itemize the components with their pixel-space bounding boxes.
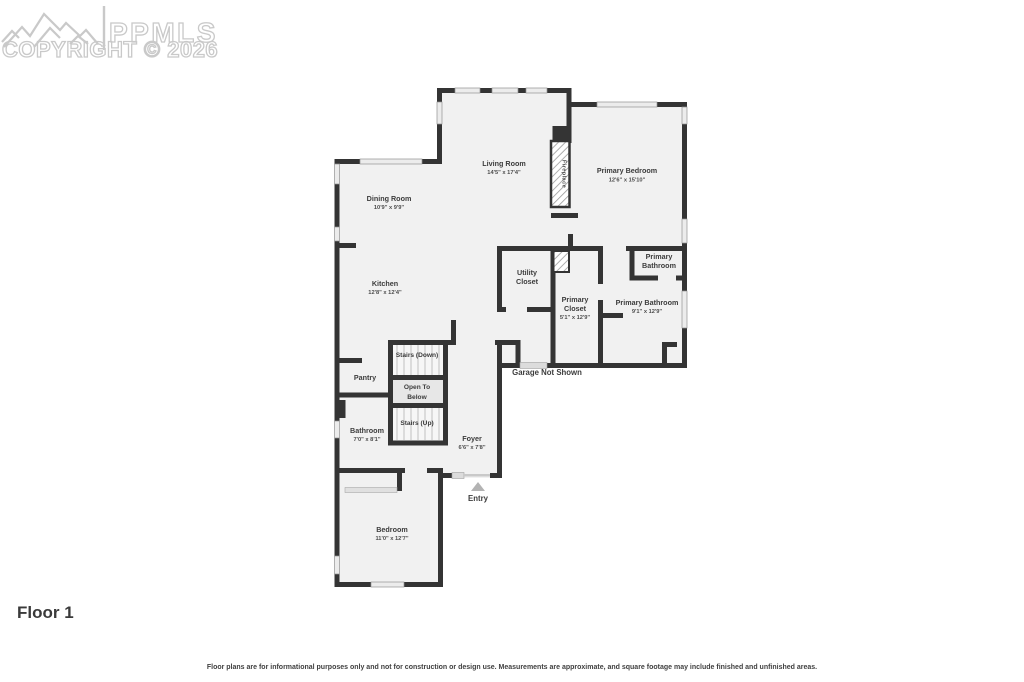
window	[597, 102, 657, 107]
label-foyer: Foyer	[462, 434, 482, 443]
label-pantry: Pantry	[354, 373, 376, 382]
label-garage-not-shown: Garage Not Shown	[512, 368, 582, 377]
entry-threshold	[464, 474, 490, 477]
window	[335, 421, 340, 438]
watermark-copyright: COPYRIGHT © 2026	[2, 37, 218, 62]
window	[492, 88, 518, 93]
entry-arrow-icon	[471, 482, 485, 491]
disclaimer-text: Floor plans are for informational purpos…	[207, 664, 817, 671]
label-bedroom: Bedroom	[376, 525, 408, 534]
dims-bedroom: 11'0" x 12'7"	[375, 536, 408, 542]
label-primary-closet-2: Closet	[564, 304, 587, 313]
label-open-to-below-2: Below	[407, 394, 427, 401]
dims-living-room: 14'5" x 17'4"	[487, 170, 521, 176]
window	[682, 107, 687, 124]
shower-stub	[340, 400, 346, 418]
window	[526, 88, 547, 93]
dims-kitchen: 12'8" x 12'4"	[368, 290, 402, 296]
label-primary-bathroom: Primary Bathroom	[616, 298, 679, 307]
front-door	[452, 473, 464, 479]
floor-plan-canvas: PPMLS COPYRIGHT © 2026	[0, 0, 1024, 682]
closet-sliding-door	[345, 488, 397, 493]
label-living-room: Living Room	[482, 159, 526, 168]
label-open-to-below-1: Open To	[404, 384, 430, 391]
window	[437, 102, 442, 124]
label-primary-closet-1: Primary	[562, 295, 589, 304]
dims-primary-bathroom: 9'1" x 12'9"	[632, 309, 663, 315]
label-primary-bathroom-wc-1: Primary	[646, 252, 673, 261]
dims-dining-room: 10'9" x 9'9"	[374, 205, 405, 211]
window	[335, 227, 340, 241]
label-stairs-up: Stairs (Up)	[400, 420, 433, 427]
window	[371, 582, 404, 587]
window	[335, 164, 340, 184]
label-utility-closet-2: Closet	[516, 277, 539, 286]
label-bathroom: Bathroom	[350, 426, 384, 435]
label-kitchen: Kitchen	[372, 279, 398, 288]
window	[360, 159, 422, 164]
window	[455, 88, 480, 93]
label-stairs-down: Stairs (Down)	[396, 352, 439, 359]
window	[682, 291, 687, 328]
window	[335, 556, 340, 574]
label-primary-bathroom-wc-2: Bathroom	[642, 261, 676, 270]
label-utility-closet-1: Utility	[517, 268, 537, 277]
dims-primary-closet: 5'1" x 12'9"	[560, 315, 591, 321]
label-primary-bedroom: Primary Bedroom	[597, 166, 657, 175]
floor-plan-page: PPMLS COPYRIGHT © 2026	[0, 0, 1024, 682]
window	[682, 219, 687, 243]
dims-bathroom: 7'0" x 8'1"	[353, 437, 380, 443]
label-dining-room: Dining Room	[367, 194, 412, 203]
furnace	[554, 251, 570, 272]
watermark: PPMLS COPYRIGHT © 2026	[2, 6, 218, 62]
dims-foyer: 6'6" x 7'8"	[458, 445, 485, 451]
floor-title: Floor 1	[17, 603, 74, 622]
label-fireplace: Fireplace	[561, 160, 567, 188]
label-entry: Entry	[468, 494, 489, 503]
dims-primary-bedroom: 12'6" x 15'10"	[609, 178, 646, 184]
